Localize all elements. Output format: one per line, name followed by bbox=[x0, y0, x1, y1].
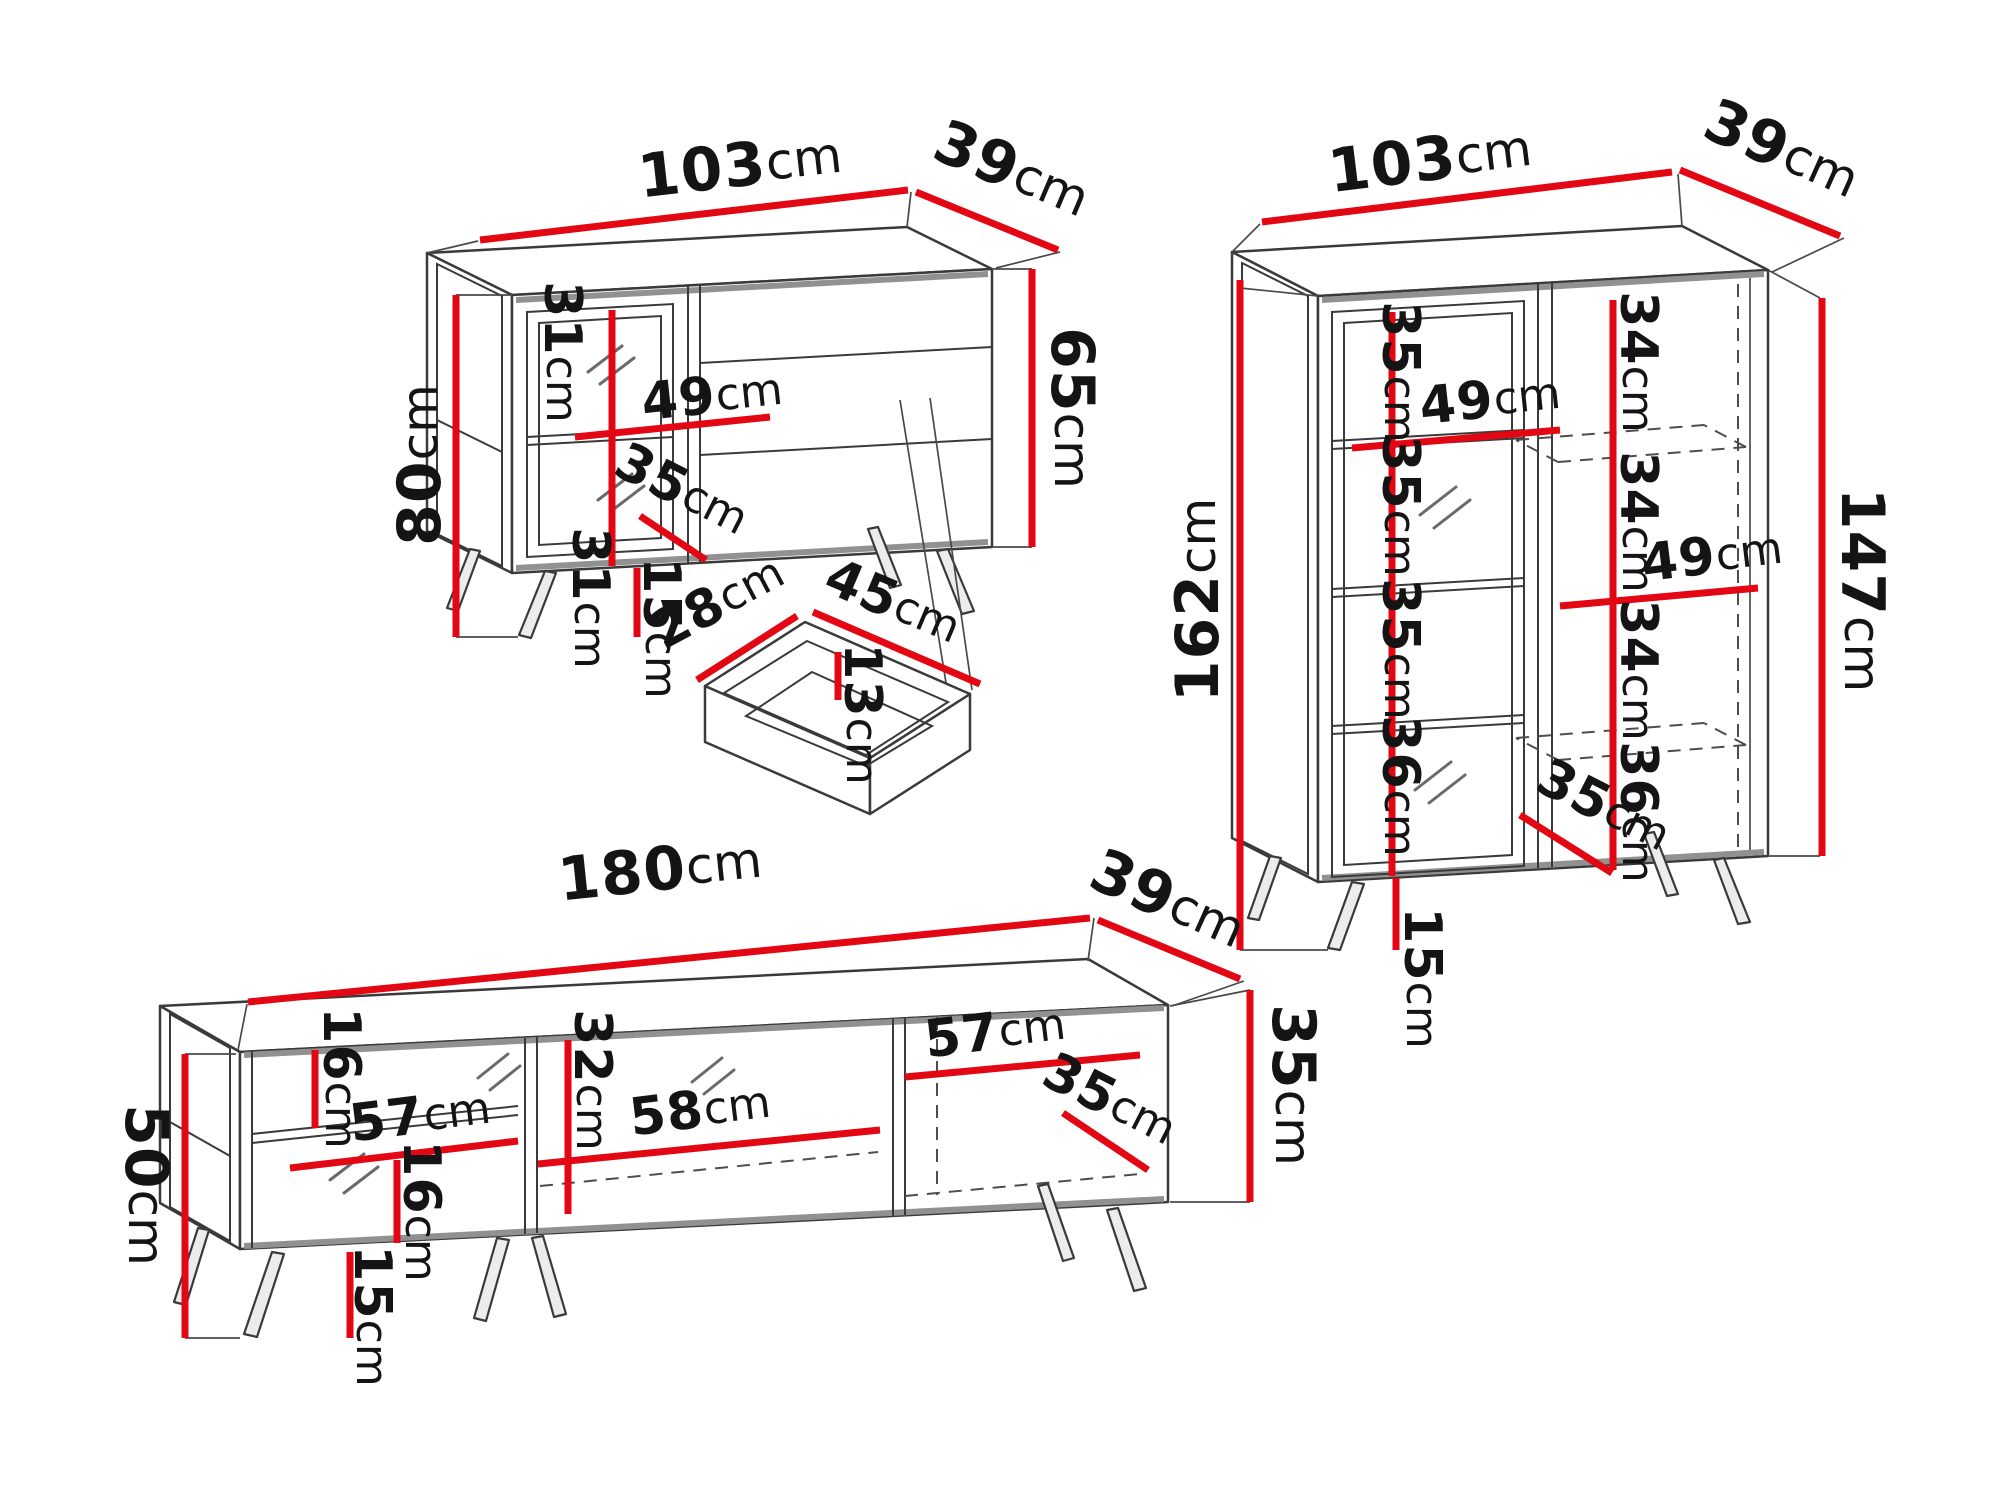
cabinet-left-section-label: 36cm bbox=[1370, 715, 1430, 856]
cabinet-left-section-label: 35cm bbox=[1370, 435, 1430, 576]
sideboard-lower-section-label: 31cm bbox=[560, 527, 620, 668]
cabinet-height-right-label: 147cm bbox=[1827, 488, 1897, 692]
drawer-depth-label: 13cm bbox=[832, 643, 892, 784]
tvstand-height-left-label: 50cm bbox=[111, 1104, 181, 1266]
tvstand-height-right-label: 35cm bbox=[1258, 1004, 1328, 1166]
cabinet-leg-height-label: 15cm bbox=[1392, 907, 1452, 1048]
tvstand-middle-height-label: 32cm bbox=[562, 1009, 622, 1150]
cabinet-left-section-label: 35cm bbox=[1370, 578, 1430, 719]
cabinet-right-section-label: 34cm bbox=[1608, 291, 1668, 432]
sideboard-height-right-label: 65cm bbox=[1037, 327, 1107, 489]
cabinet-right-section-label: 34cm bbox=[1608, 599, 1668, 740]
diagram-canvas: 103cm 39cm 80cm 65cm 31cm 49cm 31cm 35cm… bbox=[0, 0, 2000, 1500]
cabinet-height-left-label: 162cm bbox=[1163, 498, 1233, 702]
sideboard-upper-section-label: 31cm bbox=[532, 281, 592, 422]
sideboard-height-left-label: 80cm bbox=[385, 384, 455, 546]
cabinet-left-face bbox=[1232, 252, 1318, 882]
furniture-dimension-diagram: 103cm 39cm 80cm 65cm 31cm 49cm 31cm 35cm… bbox=[0, 0, 2000, 1500]
tvstand-leg-height-label: 15cm bbox=[342, 1245, 402, 1386]
